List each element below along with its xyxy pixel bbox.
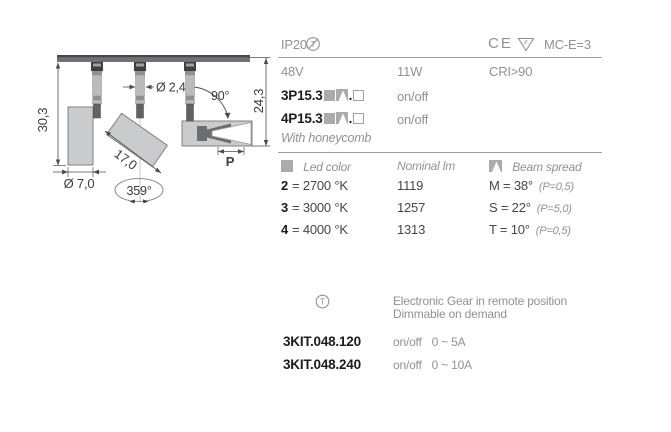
stem-middle xyxy=(134,62,146,118)
product-code: 4P15.3 xyxy=(281,111,323,126)
dim-label-rotation: 359° xyxy=(126,184,151,198)
product-code: 3P15.3 xyxy=(281,88,323,103)
dim-label-fixture-height: 24,3 xyxy=(251,89,266,114)
kit-code: 3KIT.048.120 xyxy=(283,334,361,349)
dim-label-tilt: 90° xyxy=(211,89,230,103)
beam-spread-placeholder-icon xyxy=(336,112,348,124)
fixture-vertical-body xyxy=(68,107,93,165)
divider-table xyxy=(278,152,602,153)
led-color-value: 4= 4000 °K xyxy=(281,222,348,237)
table-header-led-color: Led color xyxy=(281,158,351,176)
ip-rating: IP20 xyxy=(281,37,307,52)
beam-spread-value: S = 22°(P=5,0) xyxy=(489,200,572,215)
voltage: 48V xyxy=(281,64,304,79)
f-mark-icon: F xyxy=(517,37,535,52)
wattage: 11W xyxy=(397,64,422,79)
svg-text:F: F xyxy=(524,40,528,47)
beam-spread-value: T = 10°(P=0,5) xyxy=(489,222,571,237)
dim-label-height: 30,3 xyxy=(35,108,50,133)
led-color-placeholder-icon xyxy=(324,90,335,101)
led-color-value: 3= 3000 °K xyxy=(281,200,348,215)
code-dot: . xyxy=(349,88,353,103)
ce-mark: CE xyxy=(488,35,513,52)
finish-placeholder-icon xyxy=(353,113,364,124)
kit-code: 3KIT.048.240 xyxy=(283,357,361,372)
nominal-lm-value: 1119 xyxy=(397,178,423,193)
product-code-row: 4P15.3. xyxy=(281,111,365,126)
product-control: on/off xyxy=(397,89,428,104)
luminaire-spec-sheet: 30,3 Ø 7,0 17,0 359° xyxy=(0,0,671,432)
beam-spread-icon xyxy=(489,160,502,172)
led-color-placeholder-icon xyxy=(324,113,335,124)
nominal-lm-value: 1313 xyxy=(397,222,425,237)
remote-gear-icon: T xyxy=(315,294,330,309)
tilt-arc-arrow xyxy=(225,113,231,119)
code-dot: . xyxy=(349,111,353,126)
remote-gear-crossed-icon: T xyxy=(305,36,321,52)
page-ref: (P=0,5) xyxy=(536,225,571,237)
dimension-total-height xyxy=(53,63,66,166)
table-header-nominal-lm: Nominal lm xyxy=(397,159,455,173)
nominal-lm-value: 1257 xyxy=(397,200,425,215)
dim-label-stem-diameter: Ø 2,4 xyxy=(156,81,186,95)
gear-note-line2: Dimmable on demand xyxy=(393,307,507,321)
led-color-value: 2= 2700 °K xyxy=(281,178,348,193)
product-code-row: 3P15.3. xyxy=(281,88,365,103)
stem-right xyxy=(184,62,196,121)
divider-top xyxy=(278,57,602,58)
cri: CRI>90 xyxy=(489,64,532,79)
beam-spread-value: M = 38°(P=0,5) xyxy=(489,178,574,193)
product-control: on/off xyxy=(397,112,428,127)
mc-rating: MC-E=3 xyxy=(544,37,591,52)
table-header-beam-spread: Beam spread xyxy=(489,158,581,176)
dim-label-body-diameter: Ø 7,0 xyxy=(64,176,95,191)
beam-spread-placeholder-icon xyxy=(336,89,348,101)
mounting-rail xyxy=(57,55,250,62)
fixture-horizontal xyxy=(182,121,252,146)
page-ref: (P=0,5) xyxy=(539,181,574,193)
kit-value: on/off0 ~ 10A xyxy=(393,358,472,372)
kit-value: on/off0 ~ 5A xyxy=(393,335,465,349)
page-ref: (P=5,0) xyxy=(537,203,572,215)
gear-note-line1: Electronic Gear in remote position xyxy=(393,294,567,308)
honeycomb-note: With honeycomb xyxy=(281,131,371,145)
svg-text:T: T xyxy=(320,297,325,307)
finish-placeholder-icon xyxy=(353,90,364,101)
technical-drawing: 30,3 Ø 7,0 17,0 359° xyxy=(0,0,280,230)
led-color-icon xyxy=(281,160,293,172)
dim-label-projection: P xyxy=(226,154,235,169)
